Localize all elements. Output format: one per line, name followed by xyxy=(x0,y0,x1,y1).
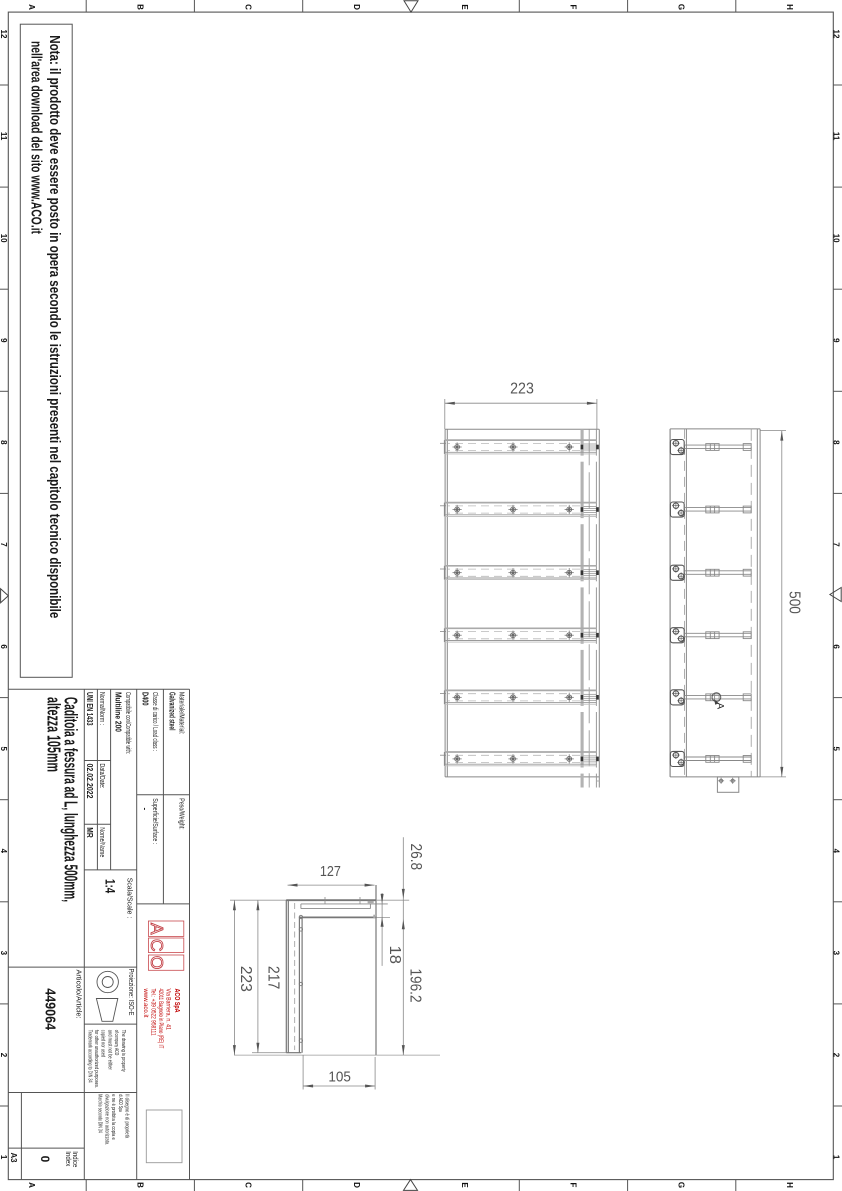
svg-text:Via Barriera, n. 41: Via Barriera, n. 41 xyxy=(164,989,171,1031)
svg-text:7: 7 xyxy=(832,542,841,547)
svg-text:Indice: Indice xyxy=(71,1151,78,1167)
svg-text:1: 1 xyxy=(0,1155,8,1160)
svg-text:11: 11 xyxy=(0,132,8,141)
svg-text:B: B xyxy=(135,1182,144,1188)
svg-text:C: C xyxy=(147,939,167,952)
svg-text:5: 5 xyxy=(832,746,841,751)
svg-text:D: D xyxy=(352,4,361,10)
svg-text:Superficie/Surface :: Superficie/Surface : xyxy=(151,798,160,844)
svg-text:1: 1 xyxy=(832,1155,841,1160)
svg-text:ACO SpA: ACO SpA xyxy=(173,989,182,1013)
svg-text:A: A xyxy=(715,703,726,710)
svg-text:223: 223 xyxy=(237,966,254,992)
svg-text:11: 11 xyxy=(832,132,841,141)
svg-text:-: - xyxy=(141,808,150,811)
svg-text:5: 5 xyxy=(0,746,8,751)
svg-text:12: 12 xyxy=(832,30,841,39)
svg-text:7: 7 xyxy=(0,542,8,547)
svg-text:F: F xyxy=(568,5,577,10)
svg-text:223: 223 xyxy=(510,381,534,398)
svg-text:Il disegno è di proprietà: Il disegno è di proprietà xyxy=(124,1094,130,1138)
svg-text:0: 0 xyxy=(38,1156,52,1163)
svg-text:26.8: 26.8 xyxy=(407,844,424,871)
svg-text:12: 12 xyxy=(0,30,8,39)
svg-text:Peso/Weight:: Peso/Weight: xyxy=(178,798,187,829)
svg-text:6: 6 xyxy=(832,644,841,649)
svg-text:E: E xyxy=(460,1182,469,1188)
svg-text:for other unauthorized purpose: for other unauthorized purposes. xyxy=(93,1030,99,1089)
svg-text:C: C xyxy=(244,1182,253,1188)
svg-text:Trademark according to DIN 34: Trademark according to DIN 34 xyxy=(86,1030,92,1083)
svg-text:H: H xyxy=(785,1182,794,1188)
svg-text:Articolo/Article:: Articolo/Article: xyxy=(75,970,84,1019)
svg-text:127: 127 xyxy=(320,863,341,880)
svg-text:2: 2 xyxy=(832,1053,841,1058)
svg-text:9: 9 xyxy=(832,338,841,343)
svg-text:8: 8 xyxy=(0,440,8,445)
svg-text:D: D xyxy=(352,1182,361,1188)
svg-text:105: 105 xyxy=(328,1069,351,1086)
svg-text:6: 6 xyxy=(0,644,8,649)
svg-text:E: E xyxy=(460,4,469,10)
svg-text:196.2: 196.2 xyxy=(407,969,424,1003)
svg-text:Index: Index xyxy=(64,1151,71,1166)
svg-text:Nota: il prodotto deve essere: Nota: il prodotto deve essere posto in o… xyxy=(46,35,62,618)
svg-text:Proiezione: ISO-E: Proiezione: ISO-E xyxy=(127,969,136,1016)
svg-text:Galvanized steel: Galvanized steel xyxy=(168,692,177,731)
svg-text:copied nor used: copied nor used xyxy=(100,1030,106,1057)
svg-text:Classe di carico / Load class: Classe di carico / Load class : xyxy=(151,692,160,751)
svg-text:3: 3 xyxy=(832,951,841,956)
svg-text:Marchio secondo DIN 34: Marchio secondo DIN 34 xyxy=(97,1094,103,1133)
svg-text:4: 4 xyxy=(832,849,841,854)
svg-text:Compatibile con/Compatible wit: Compatibile con/Compatible with: xyxy=(124,692,133,754)
svg-text:H: H xyxy=(785,4,794,10)
svg-text:di ACO Spa: di ACO Spa xyxy=(117,1094,123,1112)
svg-text:nell'area download del sito ww: nell'area download del sito www.ACO.it xyxy=(28,41,44,234)
svg-text:Scala/Scale :: Scala/Scale : xyxy=(126,878,135,919)
svg-text:42011 Bagnolo in Piano (RE) IT: 42011 Bagnolo in Piano (RE) IT xyxy=(157,989,164,1049)
svg-text:D400: D400 xyxy=(141,692,150,706)
svg-text:UNI EN 1433: UNI EN 1433 xyxy=(85,692,94,726)
svg-text:Data/Date:: Data/Date: xyxy=(98,764,107,789)
svg-text:C: C xyxy=(244,4,253,10)
svg-text:Nome/Name: Nome/Name xyxy=(98,827,107,857)
svg-text:A: A xyxy=(27,1182,36,1188)
svg-text:A: A xyxy=(27,4,36,10)
svg-text:10: 10 xyxy=(832,234,841,243)
svg-text:Multiline 200: Multiline 200 xyxy=(114,692,123,732)
svg-text:MR: MR xyxy=(85,827,94,838)
svg-text:500: 500 xyxy=(786,591,803,614)
svg-text:217: 217 xyxy=(264,966,281,990)
svg-text:18: 18 xyxy=(386,946,403,965)
svg-text:e ne è proibita la copia e: e ne è proibita la copia e xyxy=(110,1094,116,1140)
svg-text:Norma/Norm :: Norma/Norm : xyxy=(98,692,107,725)
svg-text:B: B xyxy=(135,4,144,10)
svg-text:of company ACO: of company ACO xyxy=(113,1030,119,1056)
svg-text:449064: 449064 xyxy=(41,988,58,1031)
svg-text:8: 8 xyxy=(832,440,841,445)
svg-text:A: A xyxy=(147,923,167,935)
svg-text:G: G xyxy=(677,1182,686,1188)
svg-text:2: 2 xyxy=(0,1053,8,1058)
svg-text:O: O xyxy=(147,956,167,970)
svg-text:www.aco.it: www.aco.it xyxy=(142,988,149,1018)
svg-text:Caditoia a fessura ad L, lungh: Caditoia a fessura ad L, lunghezza 500mm… xyxy=(61,697,81,902)
svg-text:Tel.: +39 0522 958111: Tel.: +39 0522 958111 xyxy=(150,989,157,1036)
svg-text:4: 4 xyxy=(0,849,8,854)
svg-text:altezza 105mm: altezza 105mm xyxy=(43,697,63,772)
svg-text:divulgazione non autorizzata.: divulgazione non autorizzata. xyxy=(103,1094,109,1145)
svg-text:F: F xyxy=(568,1183,577,1188)
svg-text:The drawing is property: The drawing is property xyxy=(120,1030,126,1072)
svg-text:and must not be either: and must not be either xyxy=(106,1030,112,1070)
svg-text:9: 9 xyxy=(0,338,8,343)
svg-text:Materiale/Material:: Materiale/Material: xyxy=(178,692,187,734)
svg-text:10: 10 xyxy=(0,234,8,243)
svg-text:G: G xyxy=(677,4,686,10)
svg-text:1:4: 1:4 xyxy=(103,879,119,893)
svg-text:3: 3 xyxy=(0,951,8,956)
svg-text:A3: A3 xyxy=(9,1153,18,1164)
svg-text:02.02.2022: 02.02.2022 xyxy=(85,764,94,799)
